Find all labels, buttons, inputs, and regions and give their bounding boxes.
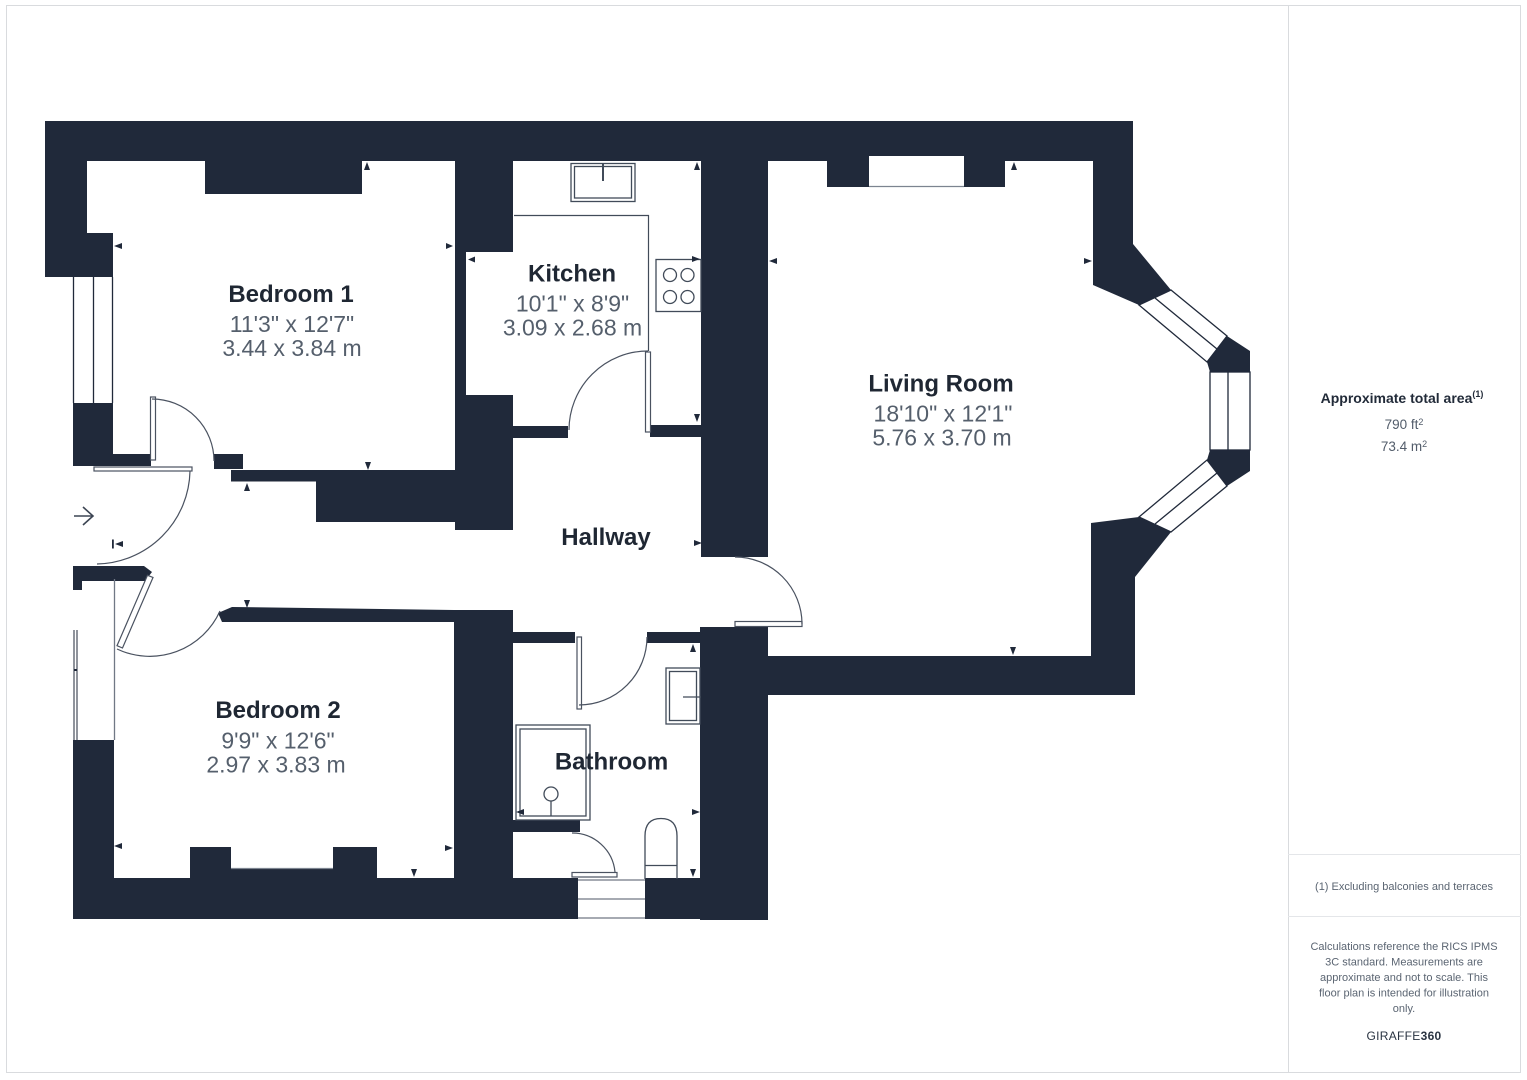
svg-text:Bedroom 1: Bedroom 1 xyxy=(228,281,353,308)
svg-text:11'3" x 12'7": 11'3" x 12'7" xyxy=(230,311,354,337)
svg-text:Kitchen: Kitchen xyxy=(528,261,616,288)
svg-text:Living Room: Living Room xyxy=(868,371,1013,398)
svg-text:73.4 m2: 73.4 m2 xyxy=(1381,439,1427,454)
svg-text:Approximate total area(1): Approximate total area(1) xyxy=(1321,389,1484,406)
svg-text:5.76 x 3.70 m: 5.76 x 3.70 m xyxy=(872,425,1011,451)
svg-text:approximate and not to scale.: approximate and not to scale. This xyxy=(1320,972,1488,984)
svg-text:(1) Excluding balconies and te: (1) Excluding balconies and terraces xyxy=(1315,881,1493,893)
svg-text:Bathroom: Bathroom xyxy=(555,749,668,776)
svg-text:Calculations reference the RIC: Calculations reference the RICS IPMS xyxy=(1310,941,1497,953)
svg-text:Bedroom 2: Bedroom 2 xyxy=(215,697,340,724)
svg-text:18'10" x 12'1": 18'10" x 12'1" xyxy=(874,401,1013,427)
svg-text:Hallway: Hallway xyxy=(561,524,651,551)
svg-text:3.09 x 2.68 m: 3.09 x 2.68 m xyxy=(503,315,642,341)
svg-text:10'1" x 8'9": 10'1" x 8'9" xyxy=(516,291,629,317)
svg-text:790 ft2: 790 ft2 xyxy=(1385,417,1424,432)
svg-text:GIRAFFE360: GIRAFFE360 xyxy=(1366,1029,1441,1043)
svg-text:floor plan is intended for ill: floor plan is intended for illustration xyxy=(1319,988,1489,1000)
svg-text:9'9" x 12'6": 9'9" x 12'6" xyxy=(221,728,334,754)
svg-text:only.: only. xyxy=(1393,1003,1415,1015)
svg-text:3C standard. Measurements are: 3C standard. Measurements are xyxy=(1325,957,1483,969)
svg-text:3.44 x 3.84 m: 3.44 x 3.84 m xyxy=(222,335,361,361)
svg-text:2.97 x 3.83 m: 2.97 x 3.83 m xyxy=(206,752,345,778)
